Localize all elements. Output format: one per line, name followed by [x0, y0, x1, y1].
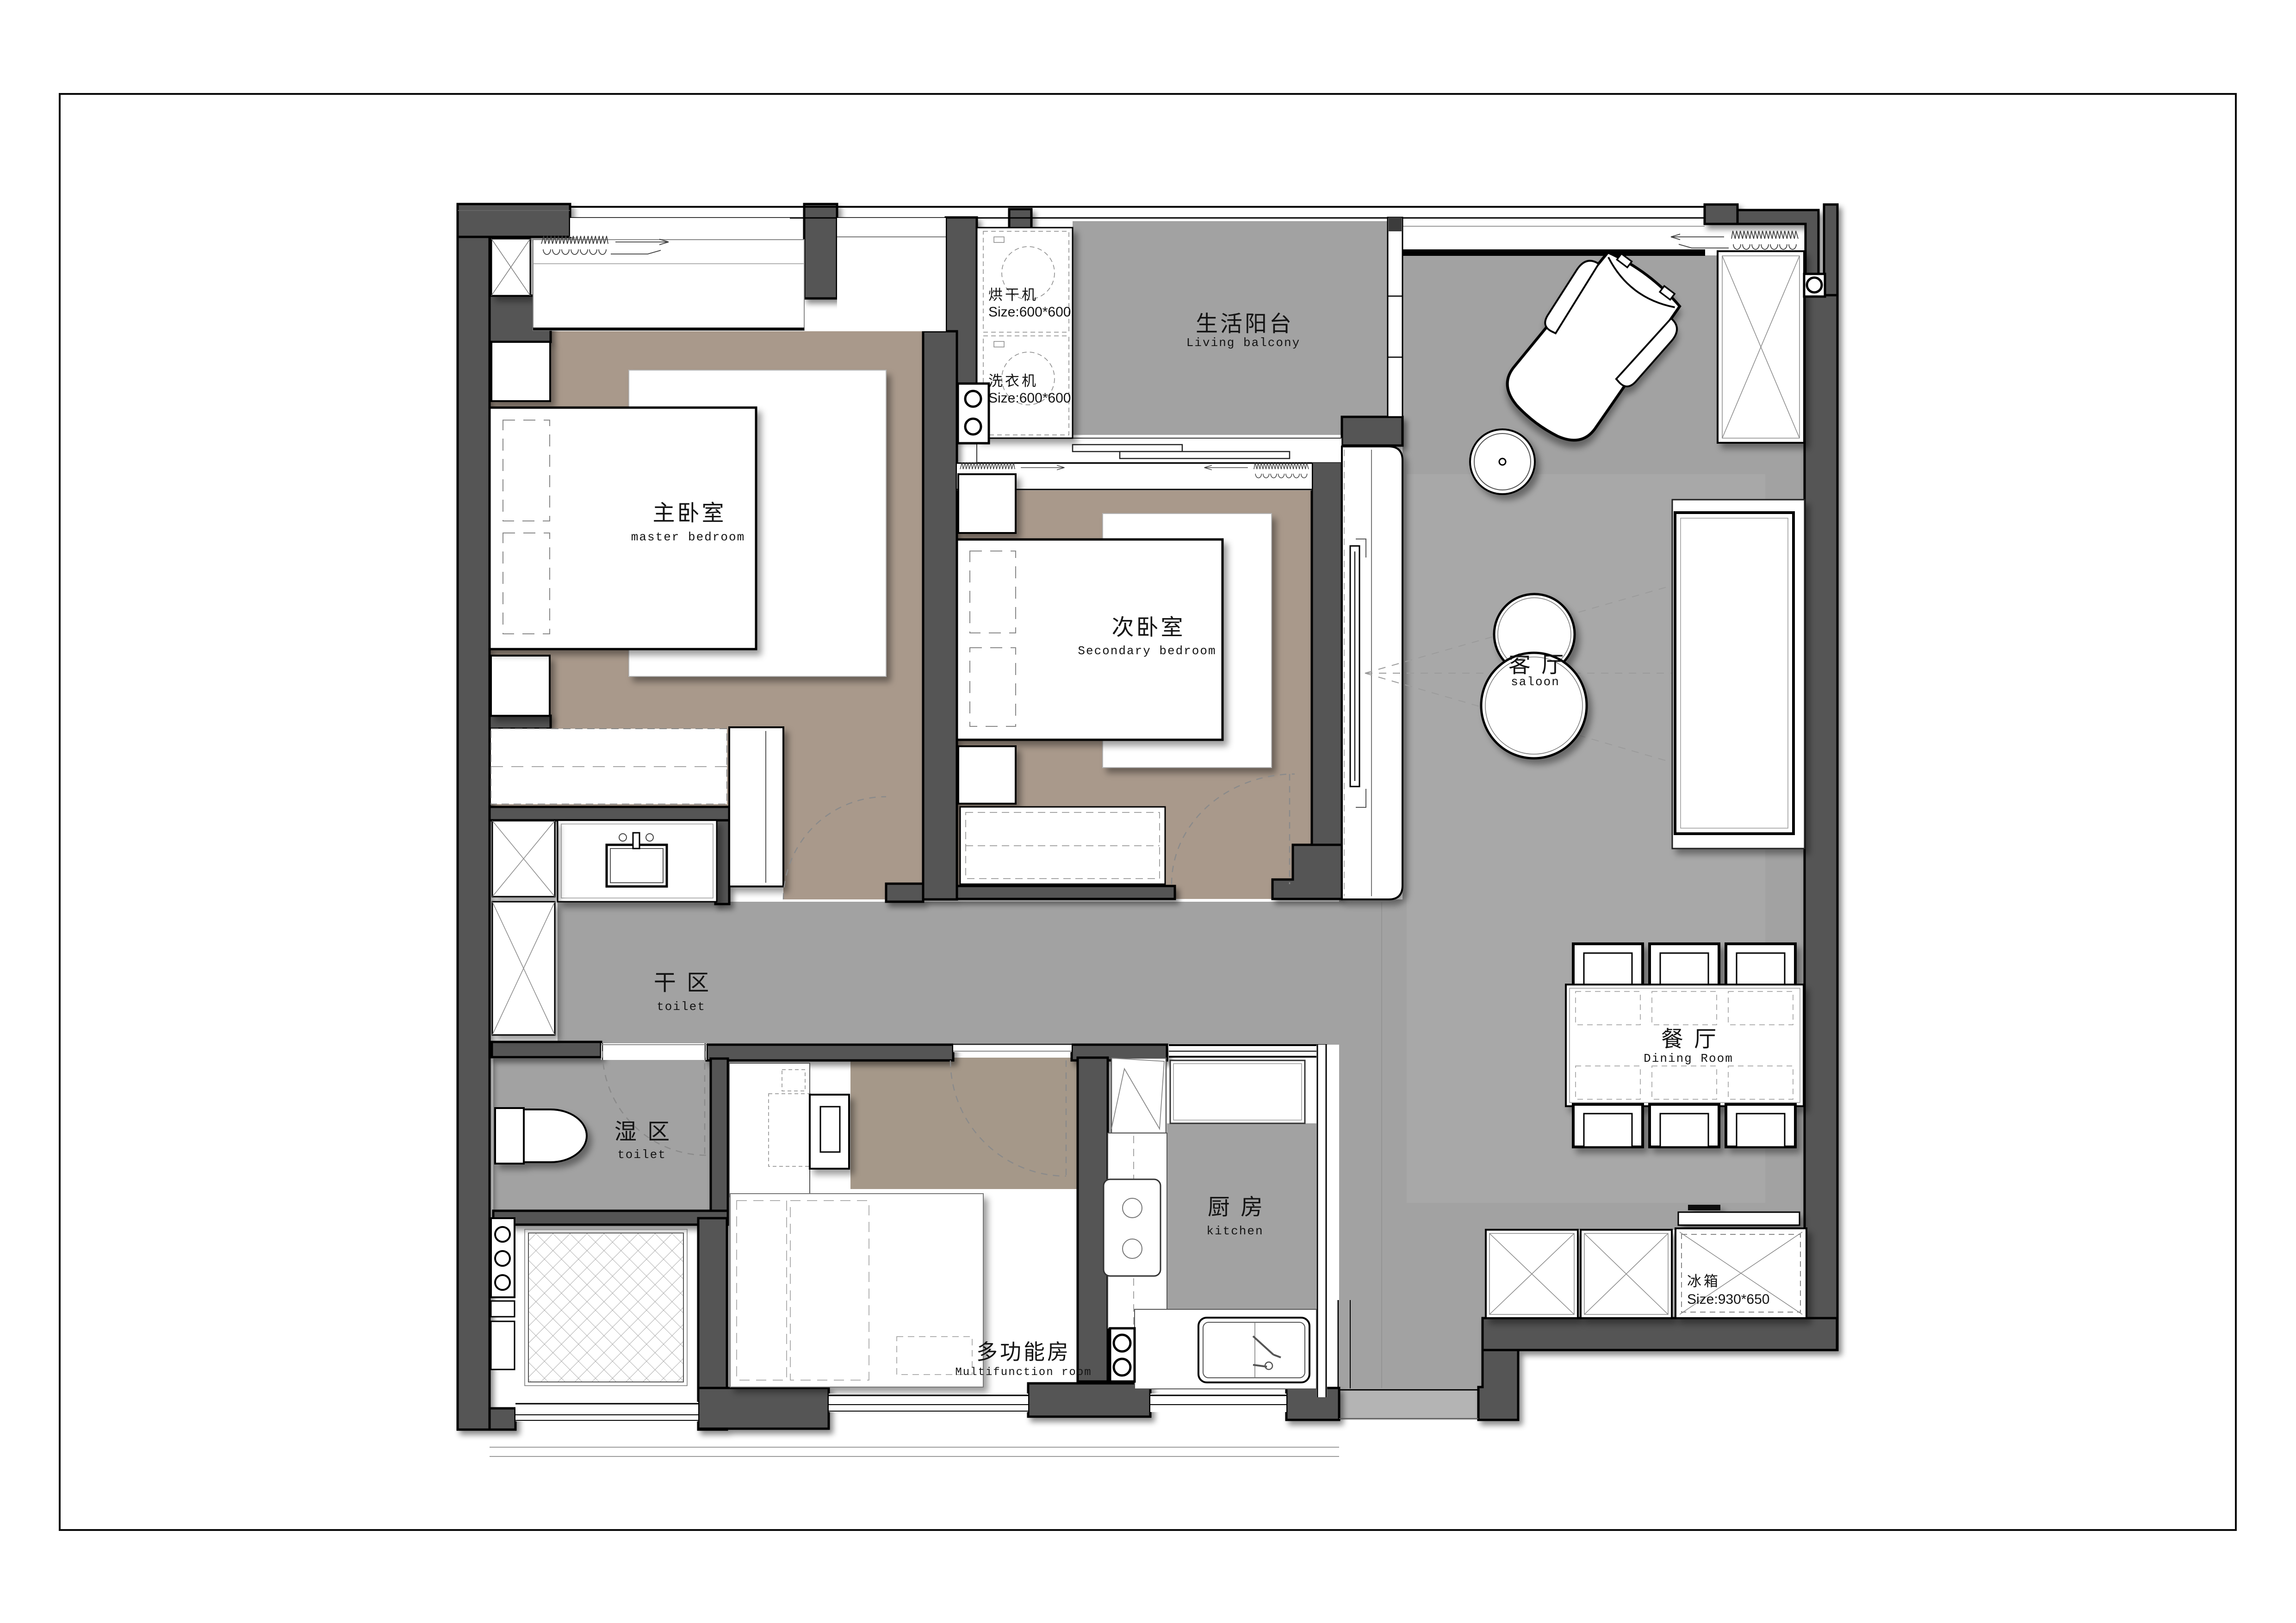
- svg-text:Size:600*600: Size:600*600: [988, 304, 1071, 320]
- svg-text:餐 厅: 餐 厅: [1661, 1027, 1719, 1052]
- svg-text:生活阳台: 生活阳台: [1196, 312, 1294, 336]
- svg-text:冰箱: 冰箱: [1687, 1273, 1720, 1289]
- svg-text:master bedroom: master bedroom: [631, 530, 745, 544]
- svg-text:Multifunction room: Multifunction room: [955, 1366, 1092, 1379]
- svg-text:saloon: saloon: [1511, 675, 1560, 689]
- svg-text:干 区: 干 区: [654, 971, 711, 995]
- svg-text:洗衣机: 洗衣机: [988, 373, 1038, 389]
- svg-text:Living balcony: Living balcony: [1186, 336, 1300, 350]
- svg-text:toilet: toilet: [617, 1148, 666, 1162]
- svg-text:kitchen: kitchen: [1206, 1224, 1263, 1238]
- svg-text:Size:600*600: Size:600*600: [988, 390, 1071, 406]
- svg-text:湿 区: 湿 区: [614, 1120, 672, 1144]
- svg-text:客 厅: 客 厅: [1508, 653, 1566, 677]
- svg-text:toilet: toilet: [657, 1000, 706, 1014]
- svg-text:烘干机: 烘干机: [988, 287, 1038, 303]
- svg-text:Dining Room: Dining Room: [1644, 1052, 1733, 1065]
- svg-text:Secondary bedroom: Secondary bedroom: [1078, 644, 1216, 658]
- svg-text:厨 房: 厨 房: [1208, 1195, 1265, 1220]
- svg-text:次卧室: 次卧室: [1111, 615, 1185, 640]
- svg-text:Size:930*650: Size:930*650: [1687, 1292, 1769, 1307]
- svg-text:主卧室: 主卧室: [652, 501, 726, 526]
- svg-text:多功能房: 多功能房: [976, 1340, 1071, 1364]
